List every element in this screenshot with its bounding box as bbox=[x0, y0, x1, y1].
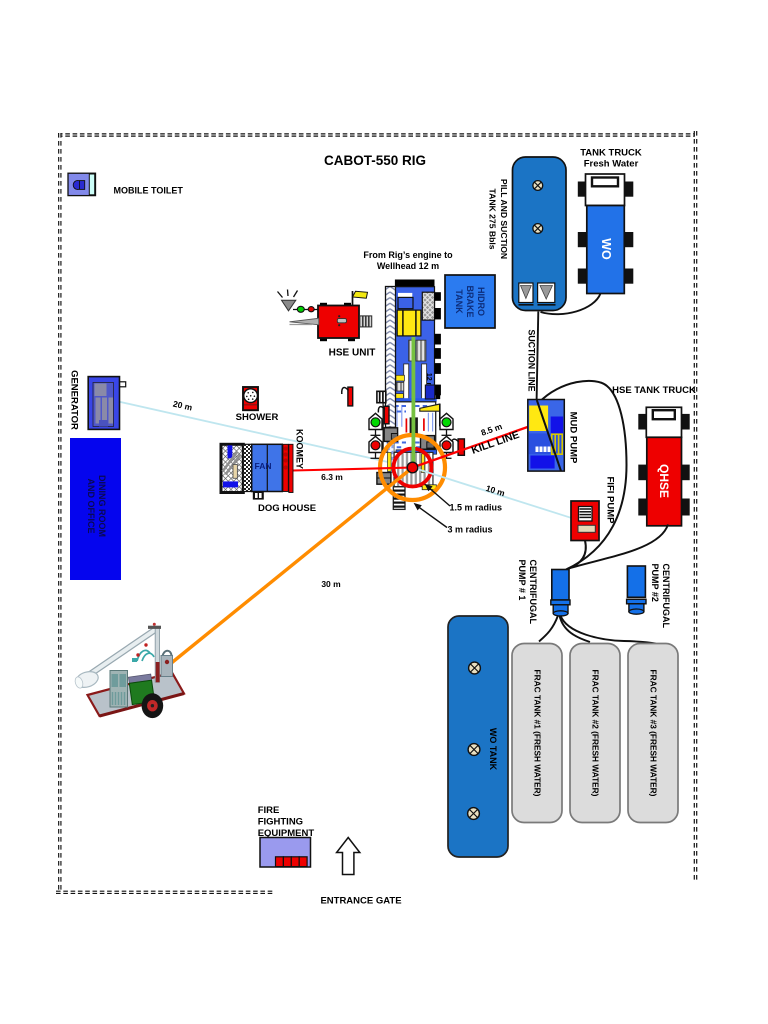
svg-text:3 m radius: 3 m radius bbox=[448, 524, 493, 534]
svg-text:FRAC TANK #1 (FRESH WATER): FRAC TANK #1 (FRESH WATER) bbox=[533, 670, 543, 797]
svg-text:Wellhead 12 m: Wellhead 12 m bbox=[377, 261, 439, 271]
svg-text:TANK TRUCK: TANK TRUCK bbox=[580, 148, 642, 159]
svg-text:SUCTION LINE: SUCTION LINE bbox=[527, 329, 537, 391]
svg-text:CABOT-550 RIG: CABOT-550 RIG bbox=[324, 153, 426, 168]
svg-text:QHSE: QHSE bbox=[657, 464, 671, 498]
svg-text:PILL AND SUCTION: PILL AND SUCTION bbox=[499, 179, 509, 259]
svg-text:10 m: 10 m bbox=[485, 483, 507, 498]
svg-text:BRAKE: BRAKE bbox=[465, 285, 475, 317]
svg-text:6.3 m: 6.3 m bbox=[321, 472, 343, 482]
svg-text:TANK 275 Bbls: TANK 275 Bbls bbox=[488, 189, 498, 250]
svg-text:FIGHTING: FIGHTING bbox=[258, 817, 303, 828]
svg-text:HSE UNIT: HSE UNIT bbox=[329, 348, 376, 359]
svg-text:FRAC TANK #2 (FRESH WATER): FRAC TANK #2 (FRESH WATER) bbox=[591, 670, 601, 797]
svg-text:SHOWER: SHOWER bbox=[236, 412, 279, 423]
svg-text:Fresh Water: Fresh Water bbox=[584, 159, 639, 170]
svg-text:ENTRANCE GATE: ENTRANCE GATE bbox=[320, 896, 401, 907]
svg-text:MOBILE TOILET: MOBILE TOILET bbox=[114, 186, 184, 196]
svg-text:PUMP # 1: PUMP # 1 bbox=[517, 560, 527, 601]
svg-text:30 m: 30 m bbox=[321, 579, 341, 589]
svg-text:FRAC TANK #3 (FRESH WATER): FRAC TANK #3 (FRESH WATER) bbox=[649, 670, 659, 797]
svg-text:HSE TANK TRUCK: HSE TANK TRUCK bbox=[612, 385, 696, 396]
svg-text:MUD PUMP: MUD PUMP bbox=[568, 412, 579, 464]
svg-text:TANK: TANK bbox=[454, 289, 464, 314]
svg-text:DOG HOUSE: DOG HOUSE bbox=[258, 503, 316, 514]
svg-text:DINING ROOM: DINING ROOM bbox=[97, 475, 107, 537]
svg-text:HIDRO: HIDRO bbox=[476, 287, 486, 316]
svg-text:WO: WO bbox=[599, 238, 613, 260]
svg-text:PUMP #2: PUMP #2 bbox=[650, 564, 660, 602]
svg-text:FAN: FAN bbox=[255, 461, 272, 471]
svg-text:1.5 m radius: 1.5 m radius bbox=[450, 503, 503, 513]
svg-text:FIRE: FIRE bbox=[258, 805, 280, 816]
svg-text:From Rig’s engine to: From Rig’s engine to bbox=[363, 250, 453, 260]
svg-text:CENTRIFUGAL: CENTRIFUGAL bbox=[528, 560, 538, 625]
svg-text:AND OFFICE: AND OFFICE bbox=[86, 479, 96, 534]
svg-text:20 m: 20 m bbox=[172, 399, 194, 413]
svg-text:GENERATOR: GENERATOR bbox=[69, 370, 80, 430]
svg-text:FIFI PUMP: FIFI PUMP bbox=[605, 477, 616, 525]
svg-text:CENTRIFUGAL: CENTRIFUGAL bbox=[661, 564, 671, 629]
svg-text:WO TANK: WO TANK bbox=[488, 728, 498, 771]
svg-text:KOOMEY: KOOMEY bbox=[294, 429, 304, 469]
